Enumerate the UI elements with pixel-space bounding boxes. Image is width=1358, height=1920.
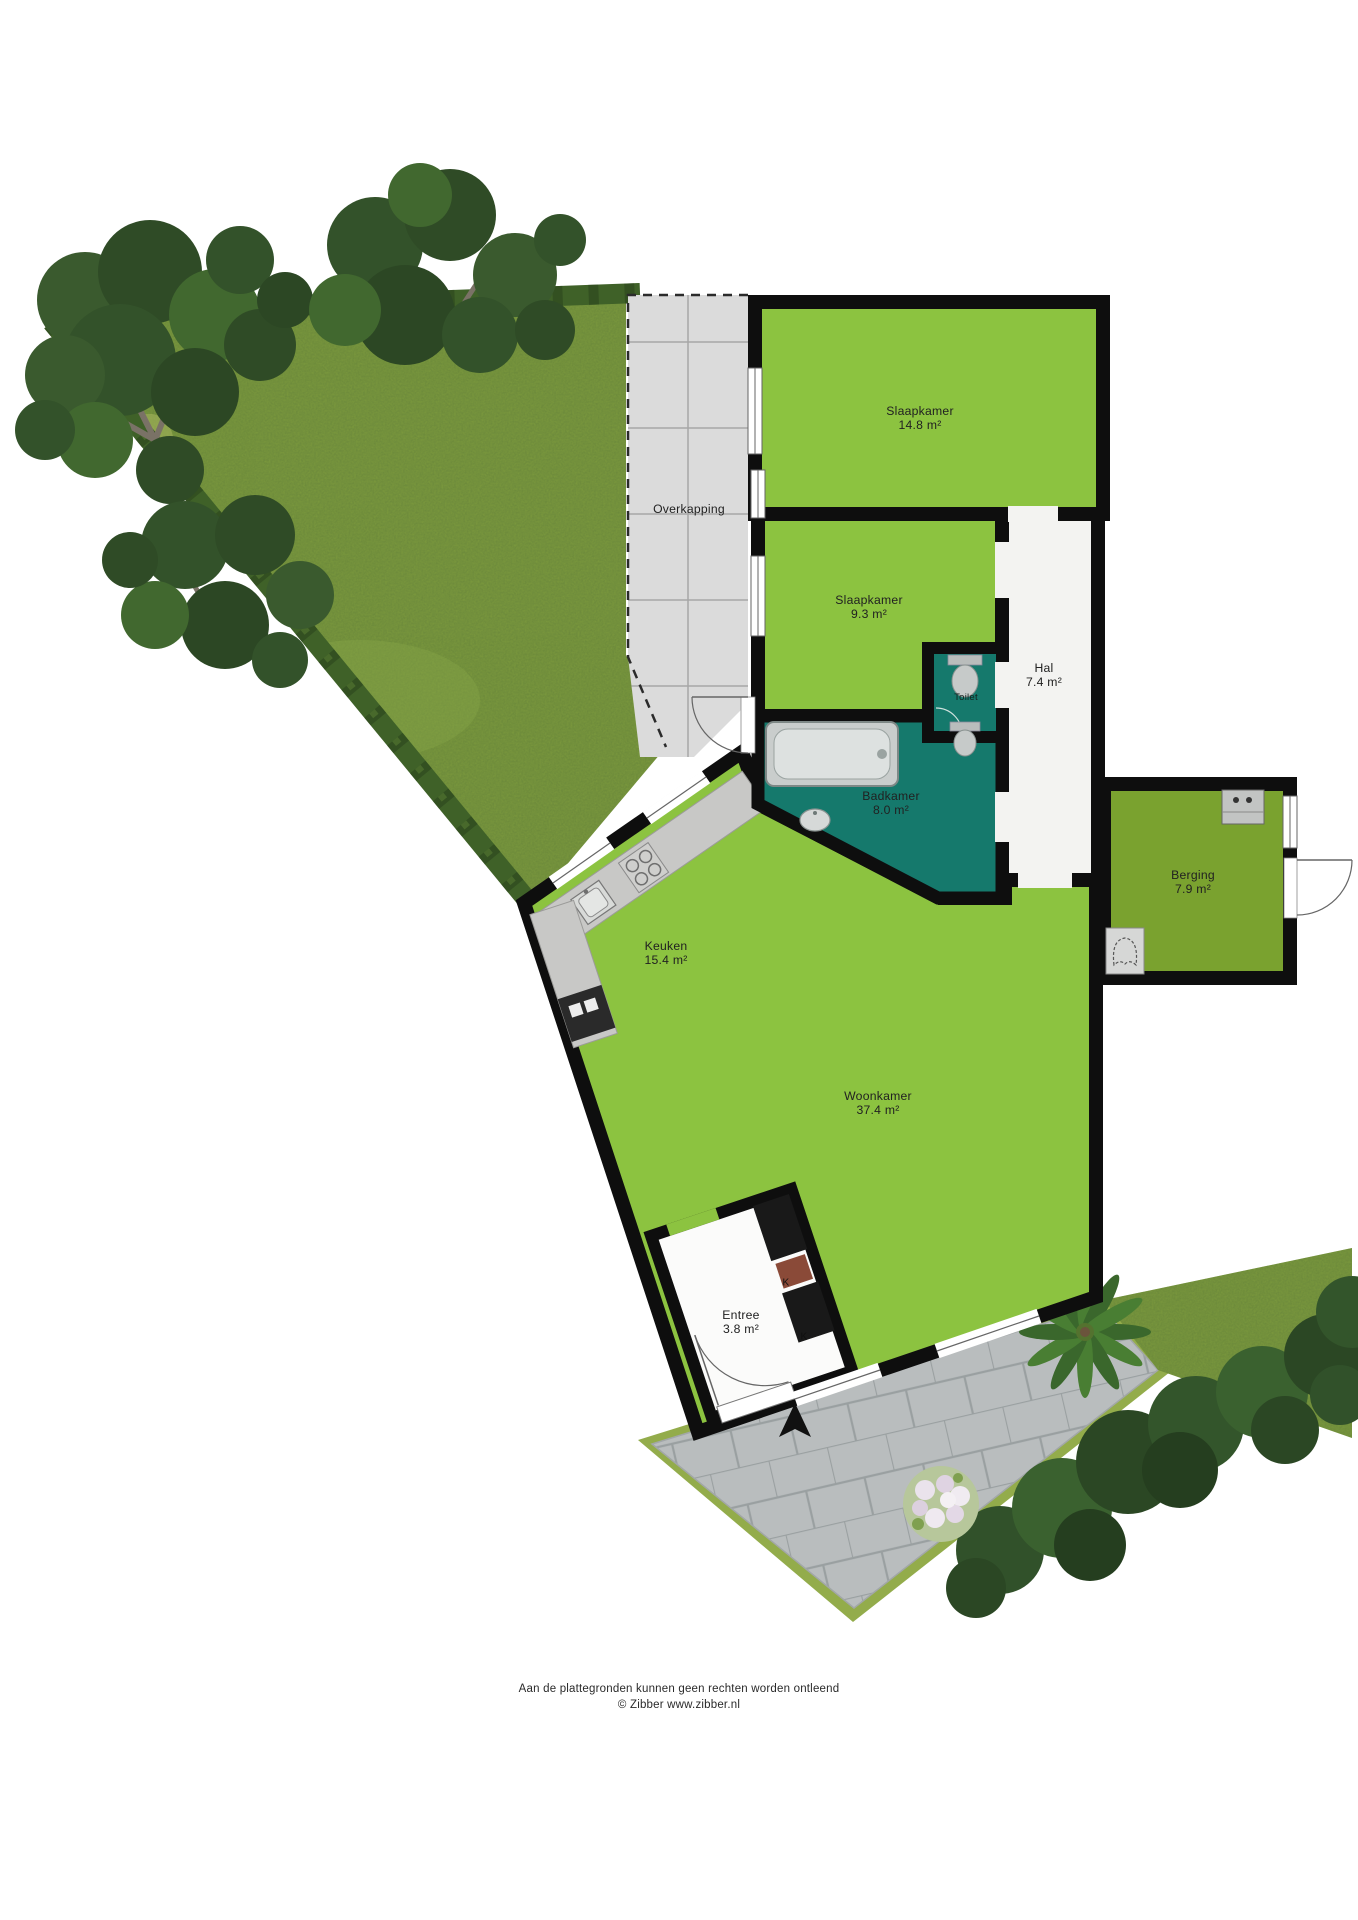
- footer-line-1: Aan de plattegronden kunnen geen rechten…: [0, 1681, 1358, 1697]
- room-label-overkapping: Overkapping: [653, 502, 725, 516]
- room-label-slaapkamer-1: Slaapkamer14.8 m²: [886, 404, 954, 432]
- closet-label: K: [801, 1332, 808, 1343]
- door-arc: [1284, 858, 1352, 918]
- room-label-entree: Entree3.8 m²: [722, 1308, 759, 1336]
- room-label-berging: Berging7.9 m²: [1171, 868, 1215, 896]
- footer-disclaimer: Aan de plattegronden kunnen geen rechten…: [0, 1681, 1358, 1713]
- flower-bed-icon: [903, 1466, 979, 1542]
- room-label-badkamer: Badkamer8.0 m²: [862, 789, 920, 817]
- bathtub-icon: [766, 722, 898, 786]
- room-label-keuken: Keuken15.4 m²: [644, 939, 687, 967]
- room-label-slaapkamer-2: Slaapkamer9.3 m²: [835, 593, 903, 621]
- bathroom-sink-icon: [800, 809, 830, 831]
- room-label-toilet: Toilet: [954, 693, 978, 703]
- tree-icon: [309, 163, 586, 373]
- room-label-woonkamer: Woonkamer37.4 m²: [844, 1089, 912, 1117]
- utility-icon: [1106, 928, 1144, 974]
- footer-line-2: © Zibber www.zibber.nl: [0, 1697, 1358, 1713]
- room-hal: [1002, 514, 1098, 880]
- overkapping-area: [628, 295, 748, 757]
- floorplan-canvas: Overkapping Slaapkamer14.8 m² Slaapkamer…: [0, 0, 1358, 1920]
- washing-machine-icon: [1222, 790, 1264, 824]
- room-label-hal: Hal7.4 m²: [1026, 661, 1062, 689]
- closet-label: K: [783, 1278, 790, 1289]
